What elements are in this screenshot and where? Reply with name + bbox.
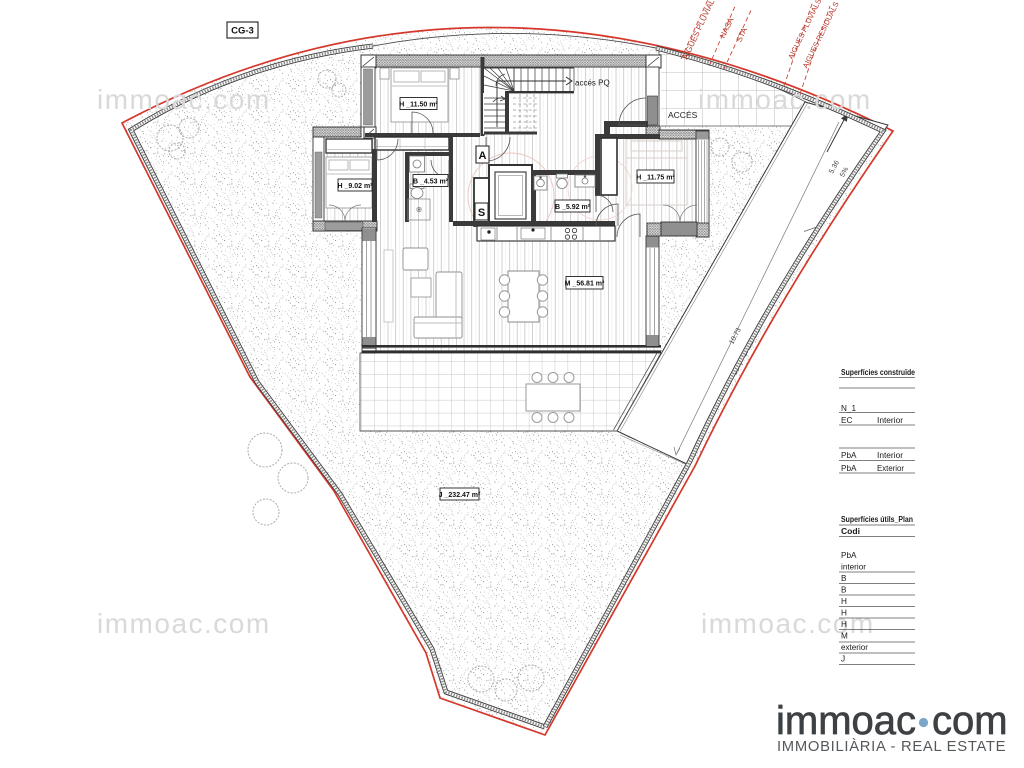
svg-text:immoac: immoac (776, 699, 916, 743)
svg-text:M _56.81 m²: M _56.81 m² (565, 281, 605, 288)
svg-text:H: H (841, 609, 847, 618)
svg-text:M: M (841, 632, 848, 641)
svg-text:N_1: N_1 (841, 404, 856, 413)
svg-text:Exterior: Exterior (877, 464, 904, 473)
svg-text:immoac.com: immoac.com (698, 84, 872, 115)
svg-text:Superfícies construïde: Superfícies construïde (841, 367, 915, 377)
svg-text:H: H (841, 620, 847, 629)
svg-text:H _9.02 m²: H _9.02 m² (337, 183, 373, 190)
svg-text:J _232.47 m²: J _232.47 m² (439, 492, 481, 499)
svg-text:PbA: PbA (841, 551, 857, 560)
svg-text:CG-3: CG-3 (231, 26, 254, 37)
svg-text:EC: EC (841, 416, 852, 425)
svg-text:H _11.50 m²: H _11.50 m² (399, 102, 438, 109)
svg-text:PbA: PbA (841, 451, 857, 460)
svg-text:S: S (478, 207, 485, 219)
svg-text:PbA: PbA (841, 464, 857, 473)
svg-text:B: B (841, 574, 847, 583)
svg-text:ACCÉS: ACCÉS (668, 110, 698, 120)
svg-text:B: B (841, 586, 847, 595)
svg-text:Interior: Interior (877, 416, 903, 425)
svg-text:IMMOBILIÀRIA - REAL ESTATE: IMMOBILIÀRIA - REAL ESTATE (777, 738, 1006, 755)
svg-text:exterior: exterior (841, 643, 868, 652)
svg-text:accés PQ: accés PQ (575, 79, 610, 88)
svg-text:immoac.com: immoac.com (97, 84, 271, 115)
svg-text:B _4.53 m²: B _4.53 m² (413, 179, 449, 186)
svg-text:B _5.92 m²: B _5.92 m² (555, 204, 591, 211)
svg-text:Codi: Codi (841, 526, 860, 536)
svg-text:Superfícies útils_Plan: Superfícies útils_Plan (841, 514, 913, 524)
svg-text:immoac.com: immoac.com (97, 608, 271, 639)
svg-text:J: J (841, 655, 845, 664)
svg-text:Interior: Interior (877, 451, 903, 460)
svg-text:H _11.75 m²: H _11.75 m² (636, 175, 675, 182)
svg-text:immoac.com: immoac.com (701, 608, 875, 639)
svg-text:com: com (932, 699, 1008, 743)
svg-text:A: A (479, 150, 487, 162)
svg-text:interior: interior (841, 563, 866, 572)
svg-text:H: H (841, 597, 847, 606)
